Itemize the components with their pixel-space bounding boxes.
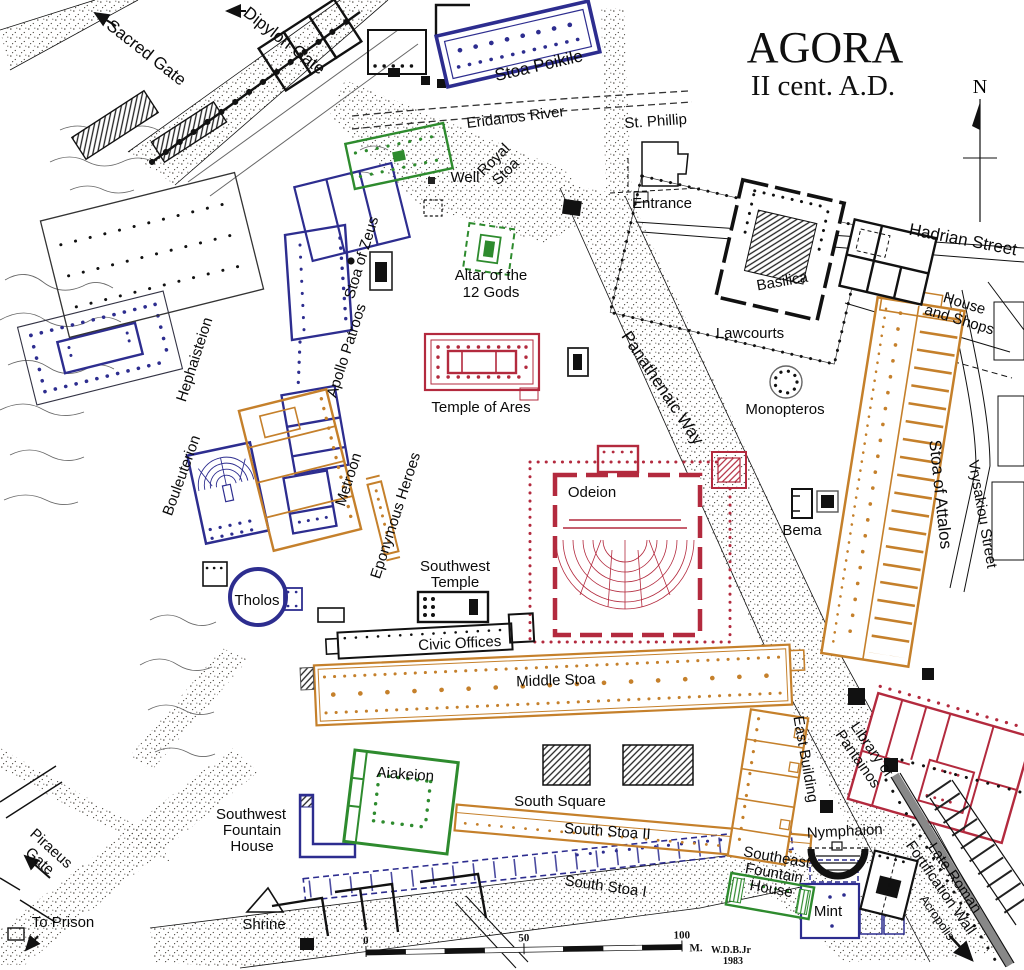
label-bema: Bema (782, 522, 822, 539)
label-middle-stoa: Middle Stoa (516, 671, 596, 691)
map-title: AGORA (747, 23, 904, 72)
label-to-prison: To Prison (32, 914, 95, 931)
nymphaion-structure (808, 842, 868, 876)
label-mint: Mint (814, 903, 843, 920)
label-well: Well (451, 169, 480, 186)
scale-0: 0 (363, 935, 369, 947)
bouleuterion (187, 442, 268, 543)
label-southwest-fountain-house: Southwest Fountain House (216, 806, 287, 855)
monopteros-circle (770, 366, 802, 398)
agora-map-page: AGORA II cent. A.D. N 0 50 100 M. W.D.B.… (0, 0, 1024, 970)
svg-text:Altar of the: Altar of the (455, 267, 528, 284)
label-tholos: Tholos (234, 592, 279, 609)
hephaisteion-precinct (40, 173, 263, 338)
southwest-temple (418, 592, 488, 622)
label-hephaisteion: Hephaisteion (173, 315, 216, 404)
label-st-phillip: St. Phillip (624, 111, 688, 132)
title-block: AGORA II cent. A.D. (747, 23, 904, 102)
label-aiakeion: Aiakeion (376, 764, 435, 785)
temple-of-ares (425, 334, 539, 400)
scale-50: 50 (518, 932, 530, 944)
label-apollo-patroos: Apollo Patroos (324, 302, 370, 400)
svg-text:Southwest: Southwest (420, 558, 491, 575)
south-square-piers (543, 745, 693, 785)
label-vrysakiou-street: Vrysakiou Street (965, 459, 1001, 571)
bema-structure (792, 489, 838, 518)
ares-altar (568, 348, 588, 376)
hephaisteion (18, 291, 183, 405)
label-south-stoa-ii: South Stoa II (563, 820, 651, 843)
label-eridanos-river: Eridanos River (466, 103, 566, 132)
compass-n-label: N (973, 76, 987, 98)
label-piraeus-gate: Piraeus Gate (15, 825, 76, 884)
label-metroon: Metroon (332, 451, 365, 509)
scale-unit: M. (689, 942, 703, 954)
svg-text:12 Gods: 12 Gods (463, 284, 520, 301)
shrine-triangle (247, 888, 283, 912)
label-southwest-temple: Southwest Temple (420, 558, 491, 591)
svg-text:Southwest: Southwest (216, 806, 287, 823)
label-monopteros: Monopteros (745, 401, 824, 418)
basilica (716, 180, 844, 320)
credit-author: W.D.B.Jr (711, 945, 751, 956)
map-subtitle: II cent. A.D. (751, 70, 895, 102)
label-altar-12-gods: Altar of the 12 Gods (455, 267, 528, 301)
label-odeion: Odeion (568, 484, 616, 501)
scale-100: 100 (673, 929, 690, 941)
credit: W.D.B.Jr 1983 (711, 945, 751, 967)
svg-text:Temple: Temple (431, 574, 479, 591)
compass-needle (972, 102, 980, 130)
label-entrance: Entrance (632, 195, 692, 212)
label-lawcourts: Lawcourts (716, 325, 784, 342)
label-sacred-gate: Sacred Gate (103, 16, 190, 90)
label-south-square: South Square (514, 793, 606, 810)
svg-text:Fountain: Fountain (223, 822, 281, 839)
st-phillip-church (634, 142, 688, 202)
label-temple-of-ares: Temple of Ares (431, 399, 530, 416)
label-shrine: Shrine (242, 916, 285, 933)
compass: N (963, 76, 997, 222)
svg-text:House: House (230, 838, 273, 855)
credit-year: 1983 (723, 956, 743, 967)
road-st-phillip (601, 8, 632, 200)
agora-map: AGORA II cent. A.D. N 0 50 100 M. W.D.B.… (0, 0, 1024, 970)
